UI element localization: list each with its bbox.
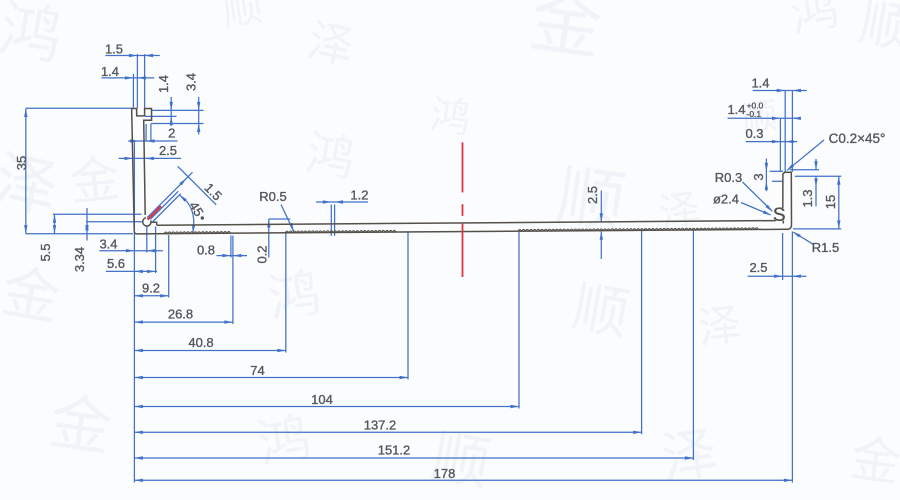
svg-text:1.4: 1.4 bbox=[751, 75, 769, 90]
svg-text:151.2: 151.2 bbox=[378, 443, 411, 458]
svg-text:1.4: 1.4 bbox=[727, 102, 745, 117]
svg-text:鸿: 鸿 bbox=[254, 409, 315, 475]
svg-text:3.34: 3.34 bbox=[72, 247, 87, 272]
svg-text:泽: 泽 bbox=[695, 300, 744, 353]
svg-text:2.5: 2.5 bbox=[585, 186, 600, 204]
svg-text:178: 178 bbox=[434, 466, 456, 481]
svg-text:35: 35 bbox=[14, 156, 29, 170]
svg-text:-0.1: -0.1 bbox=[747, 109, 762, 119]
svg-text:鸿: 鸿 bbox=[427, 93, 473, 142]
svg-text:1.4: 1.4 bbox=[101, 64, 119, 79]
svg-text:3.4: 3.4 bbox=[99, 236, 117, 251]
svg-text:金: 金 bbox=[847, 430, 900, 492]
svg-text:1.2: 1.2 bbox=[350, 187, 368, 202]
svg-text:顺: 顺 bbox=[427, 424, 495, 498]
svg-text:3.4: 3.4 bbox=[183, 73, 198, 91]
svg-text:9.2: 9.2 bbox=[142, 280, 160, 295]
svg-text:0.3: 0.3 bbox=[745, 126, 763, 141]
svg-text:金: 金 bbox=[45, 387, 116, 464]
svg-text:ø2.4: ø2.4 bbox=[713, 191, 739, 206]
svg-text:74: 74 bbox=[250, 363, 264, 378]
svg-text:3: 3 bbox=[751, 173, 766, 180]
svg-text:R1.5: R1.5 bbox=[812, 240, 839, 255]
svg-text:金: 金 bbox=[0, 259, 65, 333]
svg-text:C0.2×45°: C0.2×45° bbox=[829, 131, 886, 146]
svg-text:1.4: 1.4 bbox=[156, 75, 171, 93]
svg-text:顺: 顺 bbox=[568, 274, 634, 346]
svg-text:2: 2 bbox=[168, 125, 175, 140]
svg-text:鸿: 鸿 bbox=[265, 264, 325, 329]
svg-text:2.5: 2.5 bbox=[749, 260, 767, 275]
svg-text:40.8: 40.8 bbox=[188, 335, 213, 350]
svg-text:26.8: 26.8 bbox=[168, 306, 193, 321]
svg-text:5.6: 5.6 bbox=[107, 256, 125, 271]
svg-text:顺: 顺 bbox=[855, 0, 900, 60]
svg-text:金: 金 bbox=[67, 151, 123, 212]
svg-text:金: 金 bbox=[524, 0, 606, 70]
svg-text:R0.3: R0.3 bbox=[715, 170, 742, 185]
svg-text:0.2: 0.2 bbox=[254, 245, 269, 263]
svg-text:鸿: 鸿 bbox=[302, 127, 358, 188]
svg-text:R0.5: R0.5 bbox=[259, 189, 286, 204]
svg-text:0.8: 0.8 bbox=[197, 242, 215, 257]
svg-text:15: 15 bbox=[823, 195, 838, 209]
svg-text:1.3: 1.3 bbox=[800, 189, 815, 207]
svg-text:顺: 顺 bbox=[220, 0, 266, 34]
svg-text:鸿: 鸿 bbox=[0, 0, 67, 73]
svg-text:5.5: 5.5 bbox=[38, 243, 53, 261]
svg-text:2.5: 2.5 bbox=[159, 143, 177, 158]
svg-text:137.2: 137.2 bbox=[364, 417, 397, 432]
svg-text:104: 104 bbox=[311, 392, 333, 407]
svg-text:1.5: 1.5 bbox=[105, 41, 123, 56]
